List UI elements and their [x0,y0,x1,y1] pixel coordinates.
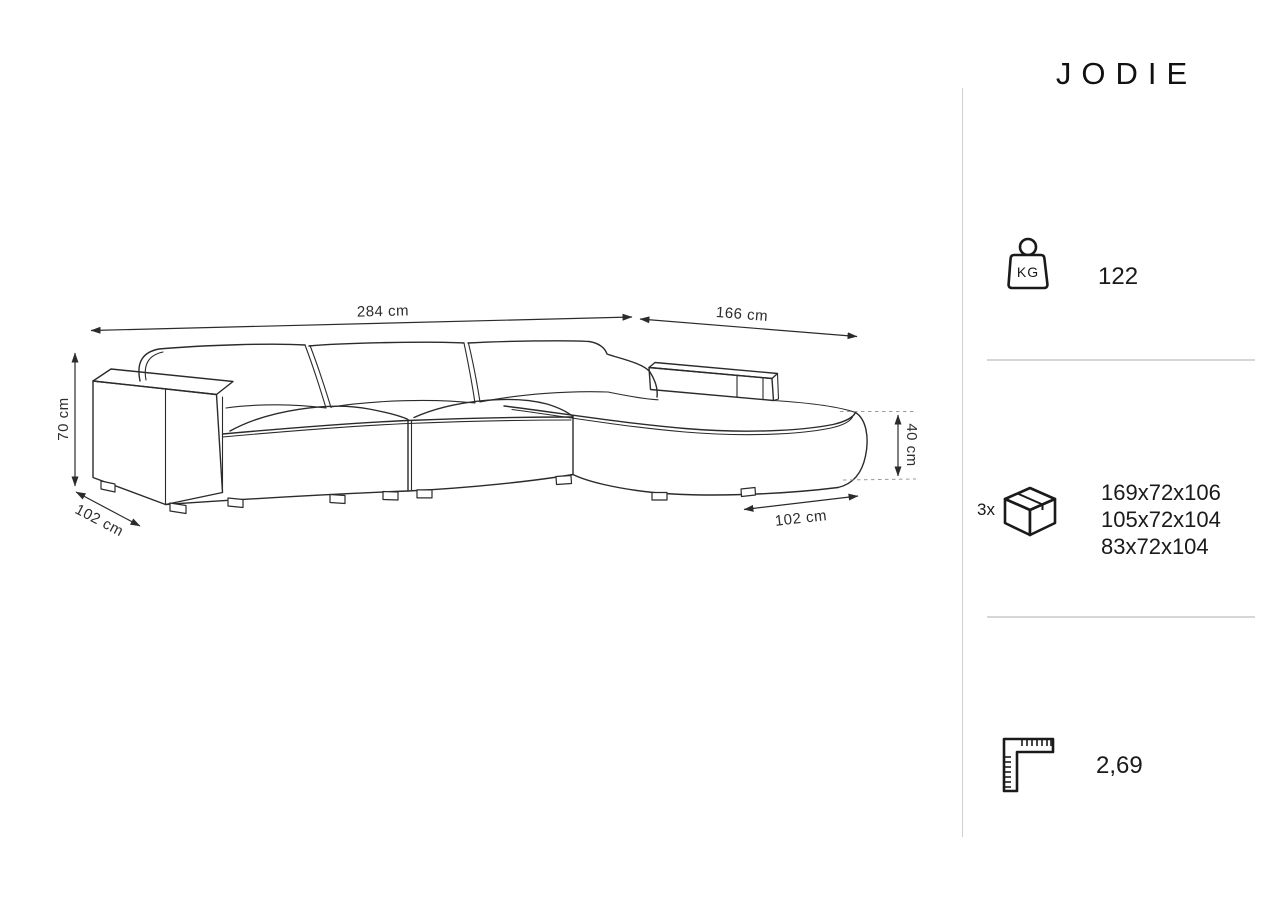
ruler-icon [1002,735,1056,793]
product-name: JODIE [963,56,1280,92]
product-spec-sheet: 284 cm 166 cm 70 cm 102 cm 40 cm 102 cm … [0,0,1280,905]
sofa-technical-drawing [0,0,960,905]
package-sizes: 169x72x106 105x72x104 83x72x104 [1101,479,1221,560]
sofa-outline [93,341,867,514]
dim-label-seat-height: 40 cm [902,395,920,495]
dimension-lines [75,317,916,526]
weight-kg-icon: KG [1001,234,1055,296]
dim-label-height: 70 cm [55,369,73,469]
panel-divider-2 [987,616,1255,618]
package-size-row: 105x72x104 [1101,506,1221,533]
panel-divider-1 [987,359,1255,361]
box-icon [999,473,1061,537]
weight-value: 122 [1098,263,1138,291]
panel-vertical-rule [962,88,963,837]
package-size-row: 83x72x104 [1101,533,1221,560]
kg-unit-label: KG [1017,264,1039,280]
volume-value: 2,69 [1096,752,1143,780]
package-count: 3x [977,500,995,520]
dim-label-total-width: 284 cm [333,302,433,322]
package-size-row: 169x72x106 [1101,479,1221,506]
sofa-feet [101,476,756,514]
